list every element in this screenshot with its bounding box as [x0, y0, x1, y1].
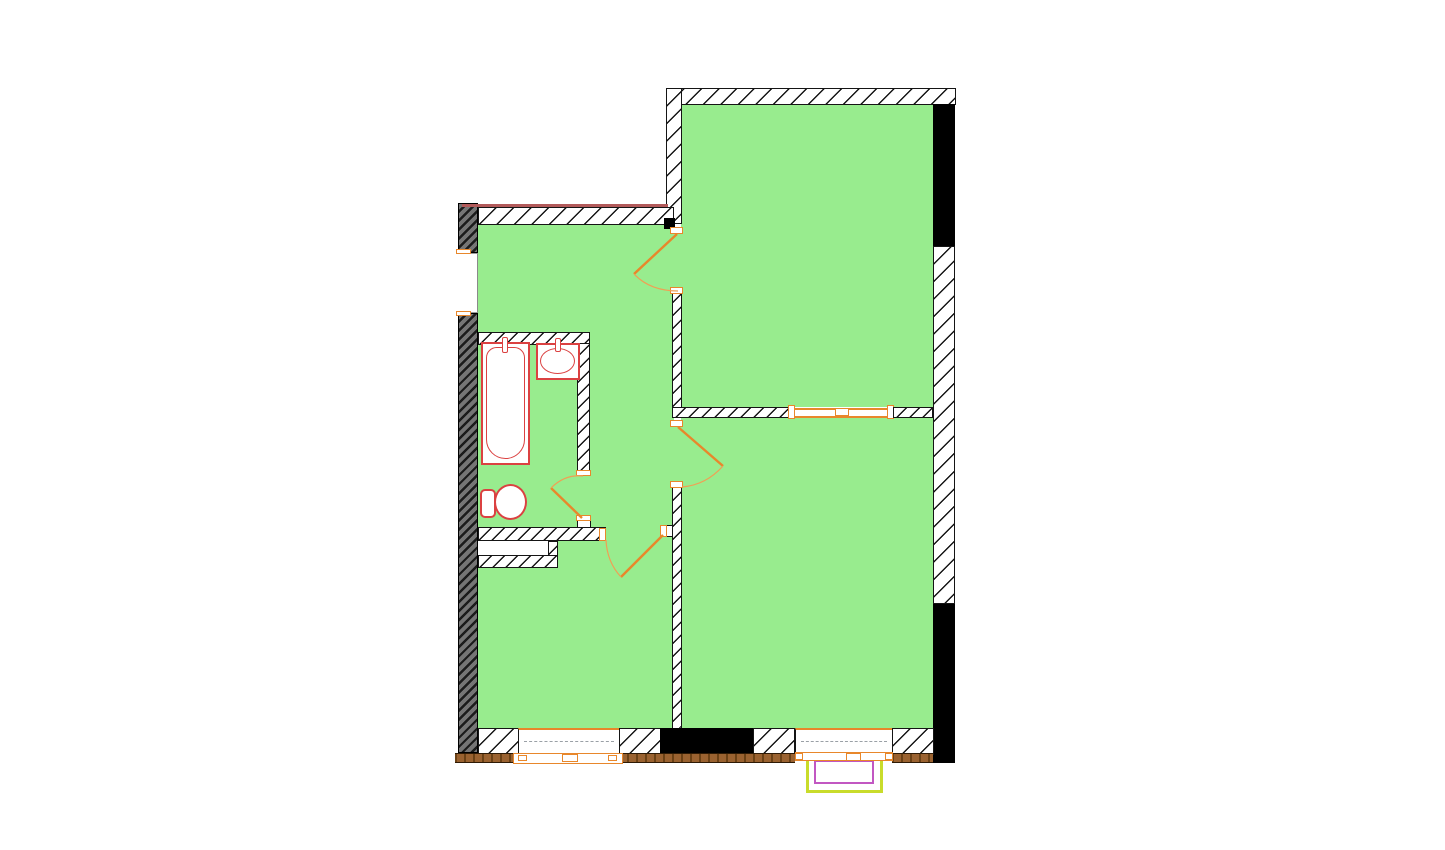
entry-cap-bottom	[456, 311, 471, 316]
hall-top-red-line	[462, 204, 668, 207]
window2-sill	[795, 752, 893, 761]
outer-wall-right-column-top	[933, 104, 955, 246]
bottom-wall-hatch-3	[753, 728, 795, 755]
baseline-brown-right	[892, 753, 933, 763]
sill2-tick-left	[795, 753, 803, 760]
window-bottom-right-room	[795, 728, 893, 754]
window-bottom-right-glass-line	[801, 741, 887, 742]
window-kitchen-glass-line	[524, 741, 614, 742]
outer-wall-top	[666, 88, 956, 105]
room-top-right-fill	[681, 104, 933, 407]
door4-cap-bottom	[576, 515, 591, 521]
door3-gap-fill	[606, 527, 661, 541]
interior-wall-vertical-upper	[672, 289, 682, 408]
bottom-wall-hatch-1	[478, 728, 519, 755]
entry-opening	[458, 253, 478, 313]
room-bottom-right-fill	[681, 416, 933, 731]
interior-wall-horiz-left	[672, 407, 793, 418]
kitchen-wall-connector	[548, 541, 558, 556]
kitchen-wall-void	[478, 541, 548, 555]
hall-top-wall	[478, 207, 674, 225]
baseline-brown-left	[455, 753, 518, 763]
bathtub-faucet	[502, 337, 508, 353]
outer-wall-left-upper	[458, 203, 478, 253]
door3-cap-right	[660, 525, 667, 537]
wide-opening-center-tick	[835, 408, 849, 416]
sill2-tick-right	[885, 753, 893, 760]
sill1-tick-center	[562, 754, 578, 762]
door4-cap-top	[576, 470, 591, 476]
bottom-wall-hatch-2	[619, 728, 661, 755]
outer-wall-left-lower	[458, 313, 478, 753]
entry-cap-top	[456, 249, 471, 254]
door3-cap-left	[599, 528, 606, 541]
sill1-tick-right	[608, 755, 617, 761]
baseline-brown-middle	[618, 753, 795, 763]
door1-gap-fill	[672, 233, 682, 289]
door2-cap-top	[670, 420, 683, 427]
sill1-tick-left	[518, 755, 527, 761]
outer-wall-right-column-bottom	[933, 604, 955, 763]
balcony-inner	[814, 760, 874, 784]
bottom-wall-black	[660, 728, 754, 755]
sink-faucet	[555, 338, 561, 352]
sill2-tick-center	[846, 753, 861, 761]
outer-wall-right-hatched	[933, 246, 955, 604]
door2-cap-bottom	[670, 481, 683, 488]
hall-bath-kitchen-fill	[478, 224, 674, 731]
kitchen-wall-band-lower	[478, 555, 558, 568]
bottom-wall-hatch-4	[892, 728, 934, 755]
kitchen-wall-band-upper	[478, 527, 606, 541]
window-kitchen	[518, 728, 620, 754]
door1-cap-bottom	[670, 287, 683, 294]
door4-gap-fill	[577, 476, 590, 516]
room1-left-wall-upper	[666, 88, 682, 224]
bathtub-basin	[486, 347, 525, 459]
floor-plan-canvas	[0, 0, 1445, 850]
interior-wall-horiz-right	[893, 407, 933, 418]
toilet-bowl	[494, 484, 527, 520]
door2-gap-fill	[672, 427, 682, 482]
wide-opening-cap-left	[788, 405, 795, 419]
interior-wall-vertical-lower	[672, 487, 682, 731]
door1-cap-top	[670, 227, 683, 234]
